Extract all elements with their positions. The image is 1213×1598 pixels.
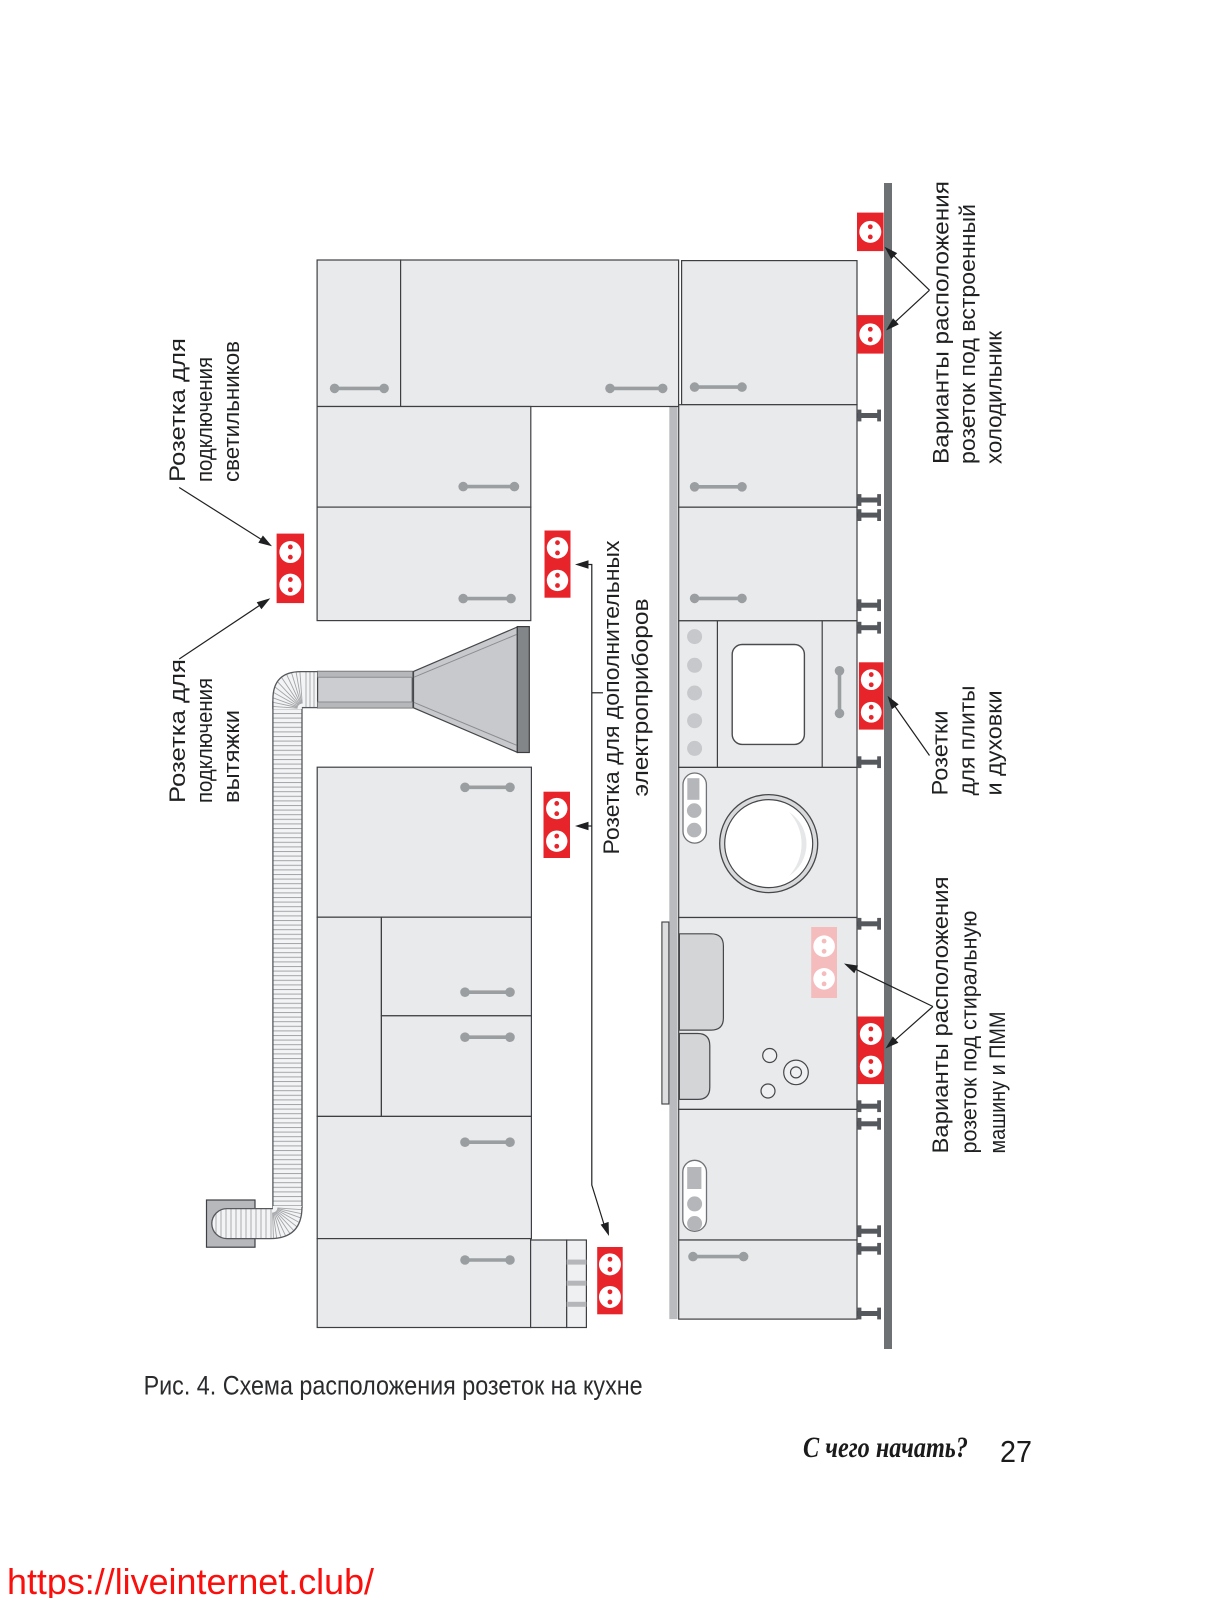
svg-text:Варианты расположения: Варианты расположения: [928, 877, 953, 1154]
svg-text:подключения: подключения: [192, 678, 217, 803]
svg-text:Розетка для: Розетка для: [165, 338, 190, 482]
svg-text:Розетки: Розетки: [928, 711, 953, 796]
svg-text:для плиты: для плиты: [955, 686, 980, 796]
svg-text:машину и ПММ: машину и ПММ: [985, 1012, 1010, 1154]
svg-text:электроприборов: электроприборов: [628, 599, 653, 797]
svg-text:Розетка для дополнительных: Розетка для дополнительных: [599, 541, 624, 855]
svg-text:розеток под встроенный: розеток под встроенный: [955, 204, 980, 464]
svg-text:светильников: светильников: [219, 341, 244, 482]
svg-text:https://liveinternet.club/: https://liveinternet.club/: [7, 1561, 375, 1598]
svg-text:Варианты расположения: Варианты расположения: [929, 181, 954, 464]
svg-text:Розетка для: Розетка для: [165, 659, 190, 803]
svg-text:и духовки: и духовки: [982, 691, 1007, 796]
svg-text:холодильник: холодильник: [982, 331, 1007, 464]
svg-text:вытяжки: вытяжки: [219, 710, 244, 803]
svg-text:27: 27: [1000, 1434, 1032, 1469]
svg-text:С чего начать?: С чего начать?: [803, 1431, 968, 1464]
svg-text:подключения: подключения: [192, 357, 217, 482]
svg-text:Рис. 4. Схема расположения роз: Рис. 4. Схема расположения розеток на ку…: [144, 1371, 643, 1401]
svg-text:розеток под стиральную: розеток под стиральную: [957, 911, 982, 1154]
